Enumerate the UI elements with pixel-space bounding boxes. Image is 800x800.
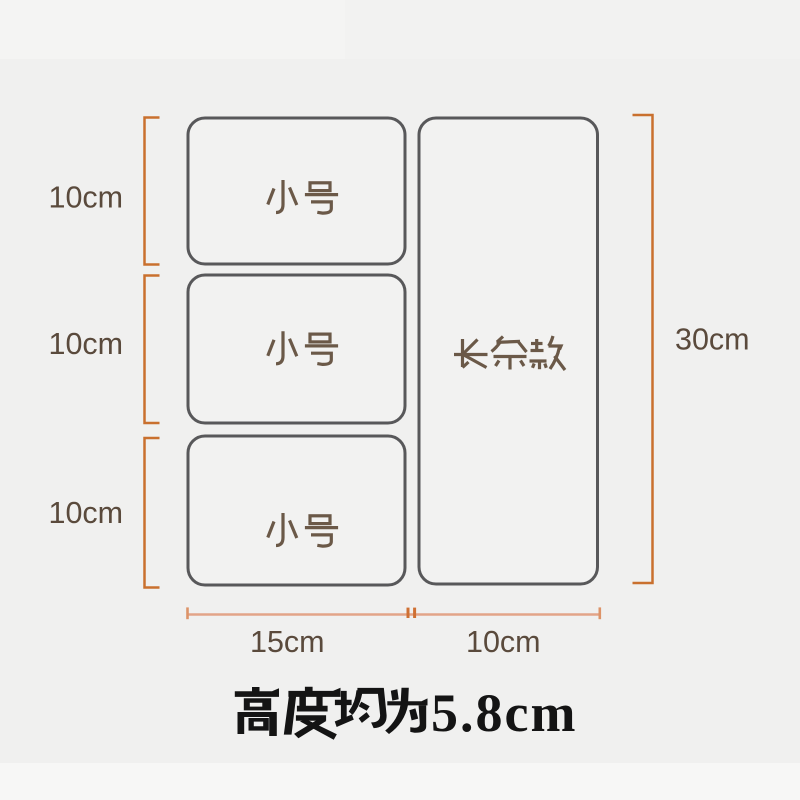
svg-text:10cm: 10cm <box>49 496 124 530</box>
svg-text:10cm: 10cm <box>466 625 541 659</box>
svg-text:5.8cm: 5.8cm <box>431 683 577 743</box>
svg-text:15cm: 15cm <box>250 625 325 659</box>
svg-text:10cm: 10cm <box>49 327 124 361</box>
svg-text:30cm: 30cm <box>675 323 750 357</box>
svg-text:10cm: 10cm <box>49 180 124 214</box>
